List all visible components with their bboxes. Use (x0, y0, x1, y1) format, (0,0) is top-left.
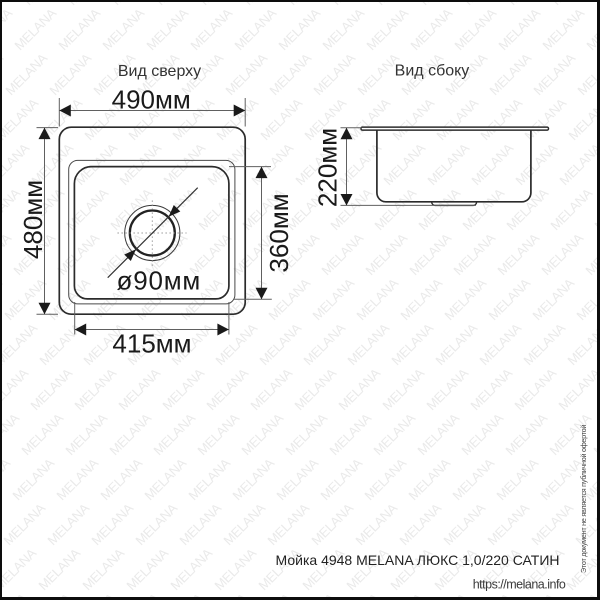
svg-text:MELANA: MELANA (511, 590, 559, 600)
svg-text:MELANA: MELANA (467, 590, 515, 600)
svg-text:MELANA: MELANA (257, 320, 305, 368)
svg-text:MELANA: MELANA (177, 500, 225, 548)
svg-text:MELANA: MELANA (0, 5, 15, 53)
svg-text:MELANA: MELANA (522, 95, 570, 143)
svg-text:415мм: 415мм (112, 329, 191, 359)
svg-text:MELANA: MELANA (513, 140, 561, 188)
svg-text:MELANA: MELANA (116, 365, 164, 413)
svg-text:MELANA: MELANA (80, 545, 128, 593)
svg-text:MELANA: MELANA (353, 500, 401, 548)
svg-text:MELANA: MELANA (54, 455, 102, 503)
svg-text:MELANA: MELANA (372, 185, 420, 233)
svg-text:MELANA: MELANA (109, 0, 157, 8)
svg-text:MELANA: MELANA (336, 365, 384, 413)
svg-text:MELANA: MELANA (593, 0, 600, 8)
svg-text:MELANA: MELANA (442, 275, 490, 323)
svg-text:MELANA: MELANA (565, 320, 600, 368)
svg-text:MELANA: MELANA (232, 5, 280, 53)
svg-text:MELANA: MELANA (452, 5, 500, 53)
svg-text:MELANA: MELANA (230, 455, 278, 503)
svg-text:MELANA: MELANA (0, 230, 14, 278)
svg-text:MELANA: MELANA (362, 455, 410, 503)
svg-text:MELANA: MELANA (379, 590, 427, 600)
svg-text:MELANA: MELANA (265, 500, 313, 548)
svg-text:MELANA: MELANA (390, 95, 438, 143)
svg-text:MELANA: MELANA (584, 5, 600, 53)
svg-text:MELANA: MELANA (276, 5, 324, 53)
svg-text:MELANA: MELANA (460, 185, 508, 233)
svg-text:MELANA: MELANA (496, 5, 544, 53)
svg-text:MELANA: MELANA (56, 5, 104, 53)
svg-text:MELANA: MELANA (12, 5, 60, 53)
svg-text:MELANA: MELANA (329, 0, 377, 8)
svg-text:MELANA: MELANA (539, 230, 587, 278)
svg-text:MELANA: MELANA (168, 545, 216, 593)
svg-text:MELANA: MELANA (416, 185, 464, 233)
svg-text:MELANA: MELANA (291, 590, 339, 600)
svg-text:MELANA: MELANA (89, 500, 137, 548)
svg-text:MELANA: MELANA (459, 410, 507, 458)
svg-text:MELANA: MELANA (73, 140, 121, 188)
svg-text:MELANA: MELANA (327, 410, 375, 458)
svg-text:MELANA: MELANA (530, 275, 578, 323)
svg-text:MELANA: MELANA (540, 5, 588, 53)
svg-text:MELANA: MELANA (398, 275, 446, 323)
svg-text:MELANA: MELANA (203, 590, 251, 600)
svg-text:MELANA: MELANA (204, 365, 252, 413)
svg-text:MELANA: MELANA (285, 0, 333, 8)
svg-text:MELANA: MELANA (380, 365, 428, 413)
svg-text:MELANA: MELANA (2, 275, 50, 323)
svg-text:MELANA: MELANA (461, 0, 509, 8)
svg-text:MELANA: MELANA (548, 185, 596, 233)
svg-text:MELANA: MELANA (478, 95, 526, 143)
svg-text:MELANA: MELANA (521, 320, 569, 368)
svg-text:MELANA: MELANA (575, 50, 600, 98)
svg-text:MELANA: MELANA (345, 320, 393, 368)
svg-text:MELANA: MELANA (117, 140, 165, 188)
svg-text:MELANA: MELANA (28, 365, 76, 413)
svg-text:MELANA: MELANA (159, 590, 207, 600)
svg-text:MELANA: MELANA (549, 0, 597, 8)
svg-text:MELANA: MELANA (504, 185, 552, 233)
svg-text:MELANA: MELANA (107, 410, 155, 458)
svg-text:Этот документ не является публ: Этот документ не является публичной офер… (579, 425, 588, 573)
svg-text:MELANA: MELANA (335, 590, 383, 600)
svg-text:MELANA: MELANA (274, 455, 322, 503)
svg-text:MELANA: MELANA (267, 50, 315, 98)
svg-text:MELANA: MELANA (592, 185, 600, 233)
svg-text:MELANA: MELANA (583, 230, 600, 278)
svg-text:MELANA: MELANA (144, 5, 192, 53)
svg-text:MELANA: MELANA (591, 410, 600, 458)
svg-text:MELANA: MELANA (186, 455, 234, 503)
svg-text:MELANA: MELANA (133, 500, 181, 548)
svg-text:MELANA: MELANA (529, 500, 577, 548)
svg-text:MELANA: MELANA (406, 455, 454, 503)
svg-text:MELANA: MELANA (197, 0, 245, 8)
svg-text:MELANA: MELANA (283, 410, 331, 458)
svg-text:MELANA: MELANA (0, 95, 41, 143)
svg-text:MELANA: MELANA (115, 590, 163, 600)
svg-text:MELANA: MELANA (487, 50, 535, 98)
svg-text:MELANA: MELANA (555, 590, 600, 600)
svg-text:MELANA: MELANA (36, 545, 84, 593)
svg-text:MELANA: MELANA (161, 140, 209, 188)
svg-text:MELANA: MELANA (195, 410, 243, 458)
svg-text:MELANA: MELANA (241, 0, 289, 8)
svg-text:MELANA: MELANA (319, 230, 367, 278)
svg-text:MELANA: MELANA (512, 365, 560, 413)
svg-text:MELANA: MELANA (477, 320, 525, 368)
svg-text:MELANA: MELANA (486, 275, 534, 323)
svg-text:MELANA: MELANA (10, 455, 58, 503)
svg-text:MELANA: MELANA (292, 365, 340, 413)
svg-text:MELANA: MELANA (309, 500, 357, 548)
svg-text:Мойка 4948 MELANA ЛЮКС 1,0/220: Мойка 4948 MELANA ЛЮКС 1,0/220 САТИН (276, 552, 560, 568)
svg-text:MELANA: MELANA (318, 455, 366, 503)
svg-text:MELANA: MELANA (0, 320, 40, 368)
svg-text:MELANA: MELANA (557, 140, 600, 188)
svg-text:MELANA: MELANA (65, 0, 113, 8)
svg-text:MELANA: MELANA (417, 0, 465, 8)
svg-text:MELANA: MELANA (142, 455, 190, 503)
svg-text:MELANA: MELANA (63, 410, 111, 458)
svg-text:ø90мм: ø90мм (117, 265, 202, 295)
svg-text:MELANA: MELANA (160, 365, 208, 413)
svg-text:MELANA: MELANA (27, 590, 75, 600)
svg-text:MELANA: MELANA (151, 410, 199, 458)
svg-text:MELANA: MELANA (301, 320, 349, 368)
svg-text:490мм: 490мм (112, 84, 191, 114)
svg-text:MELANA: MELANA (47, 50, 95, 98)
svg-text:MELANA: MELANA (249, 140, 297, 188)
svg-text:MELANA: MELANA (45, 500, 93, 548)
svg-text:MELANA: MELANA (0, 455, 13, 503)
svg-text:MELANA: MELANA (153, 0, 201, 8)
svg-text:MELANA: MELANA (503, 410, 551, 458)
svg-text:MELANA: MELANA (239, 410, 287, 458)
svg-text:MELANA: MELANA (64, 185, 112, 233)
svg-text:MELANA: MELANA (531, 50, 579, 98)
svg-text:MELANA: MELANA (212, 545, 260, 593)
svg-text:MELANA: MELANA (494, 455, 542, 503)
svg-text:MELANA: MELANA (485, 500, 533, 548)
svg-text:MELANA: MELANA (98, 455, 146, 503)
svg-text:MELANA: MELANA (451, 230, 499, 278)
svg-text:MELANA: MELANA (450, 455, 498, 503)
svg-text:MELANA: MELANA (0, 365, 31, 413)
svg-text:MELANA: MELANA (19, 410, 67, 458)
svg-text:MELANA: MELANA (196, 185, 244, 233)
svg-text:MELANA: MELANA (72, 365, 120, 413)
svg-text:MELANA: MELANA (469, 140, 517, 188)
svg-text:MELANA: MELANA (363, 230, 411, 278)
svg-text:MELANA: MELANA (433, 320, 481, 368)
svg-text:360мм: 360мм (264, 193, 294, 272)
svg-text:MELANA: MELANA (415, 410, 463, 458)
svg-text:MELANA: MELANA (311, 50, 359, 98)
svg-text:MELANA: MELANA (1, 500, 49, 548)
svg-text:MELANA: MELANA (0, 410, 22, 458)
svg-text:MELANA: MELANA (423, 590, 471, 600)
svg-text:MELANA: MELANA (37, 320, 85, 368)
svg-text:MELANA: MELANA (100, 5, 148, 53)
svg-text:MELANA: MELANA (3, 50, 51, 98)
svg-text:MELANA: MELANA (566, 95, 600, 143)
svg-text:MELANA: MELANA (373, 0, 421, 8)
svg-text:MELANA: MELANA (55, 230, 103, 278)
svg-text:MELANA: MELANA (424, 365, 472, 413)
svg-text:MELANA: MELANA (188, 5, 236, 53)
svg-text:MELANA: MELANA (434, 95, 482, 143)
svg-text:MELANA: MELANA (505, 0, 553, 8)
svg-text:MELANA: MELANA (0, 590, 30, 600)
svg-text:MELANA: MELANA (495, 230, 543, 278)
svg-text:MELANA: MELANA (468, 365, 516, 413)
svg-text:MELANA: MELANA (247, 590, 295, 600)
svg-text:MELANA: MELANA (408, 5, 456, 53)
svg-text:https://melana.info: https://melana.info (473, 578, 566, 592)
svg-text:MELANA: MELANA (389, 320, 437, 368)
svg-text:MELANA: MELANA (346, 95, 394, 143)
svg-text:220мм: 220мм (313, 128, 343, 207)
svg-text:MELANA: MELANA (221, 500, 269, 548)
svg-text:MELANA: MELANA (364, 5, 412, 53)
svg-text:MELANA: MELANA (441, 500, 489, 548)
svg-text:Вид сверху: Вид сверху (118, 63, 201, 80)
svg-text:MELANA: MELANA (124, 545, 172, 593)
svg-text:MELANA: MELANA (371, 410, 419, 458)
svg-text:MELANA: MELANA (397, 500, 445, 548)
svg-text:MELANA: MELANA (310, 275, 358, 323)
svg-text:MELANA: MELANA (258, 95, 306, 143)
svg-text:MELANA: MELANA (266, 275, 314, 323)
svg-text:MELANA: MELANA (381, 140, 429, 188)
svg-text:480мм: 480мм (18, 180, 48, 259)
svg-text:MELANA: MELANA (556, 365, 600, 413)
svg-text:MELANA: MELANA (320, 5, 368, 53)
svg-text:MELANA: MELANA (223, 50, 271, 98)
svg-text:MELANA: MELANA (21, 0, 69, 8)
svg-text:MELANA: MELANA (574, 275, 600, 323)
svg-text:MELANA: MELANA (248, 365, 296, 413)
svg-text:MELANA: MELANA (354, 275, 402, 323)
svg-text:MELANA: MELANA (0, 545, 39, 593)
svg-text:MELANA: MELANA (71, 590, 119, 600)
svg-text:MELANA: MELANA (425, 140, 473, 188)
svg-text:MELANA: MELANA (407, 230, 455, 278)
svg-text:Вид сбоку: Вид сбоку (395, 63, 470, 80)
svg-text:MELANA: MELANA (214, 95, 262, 143)
